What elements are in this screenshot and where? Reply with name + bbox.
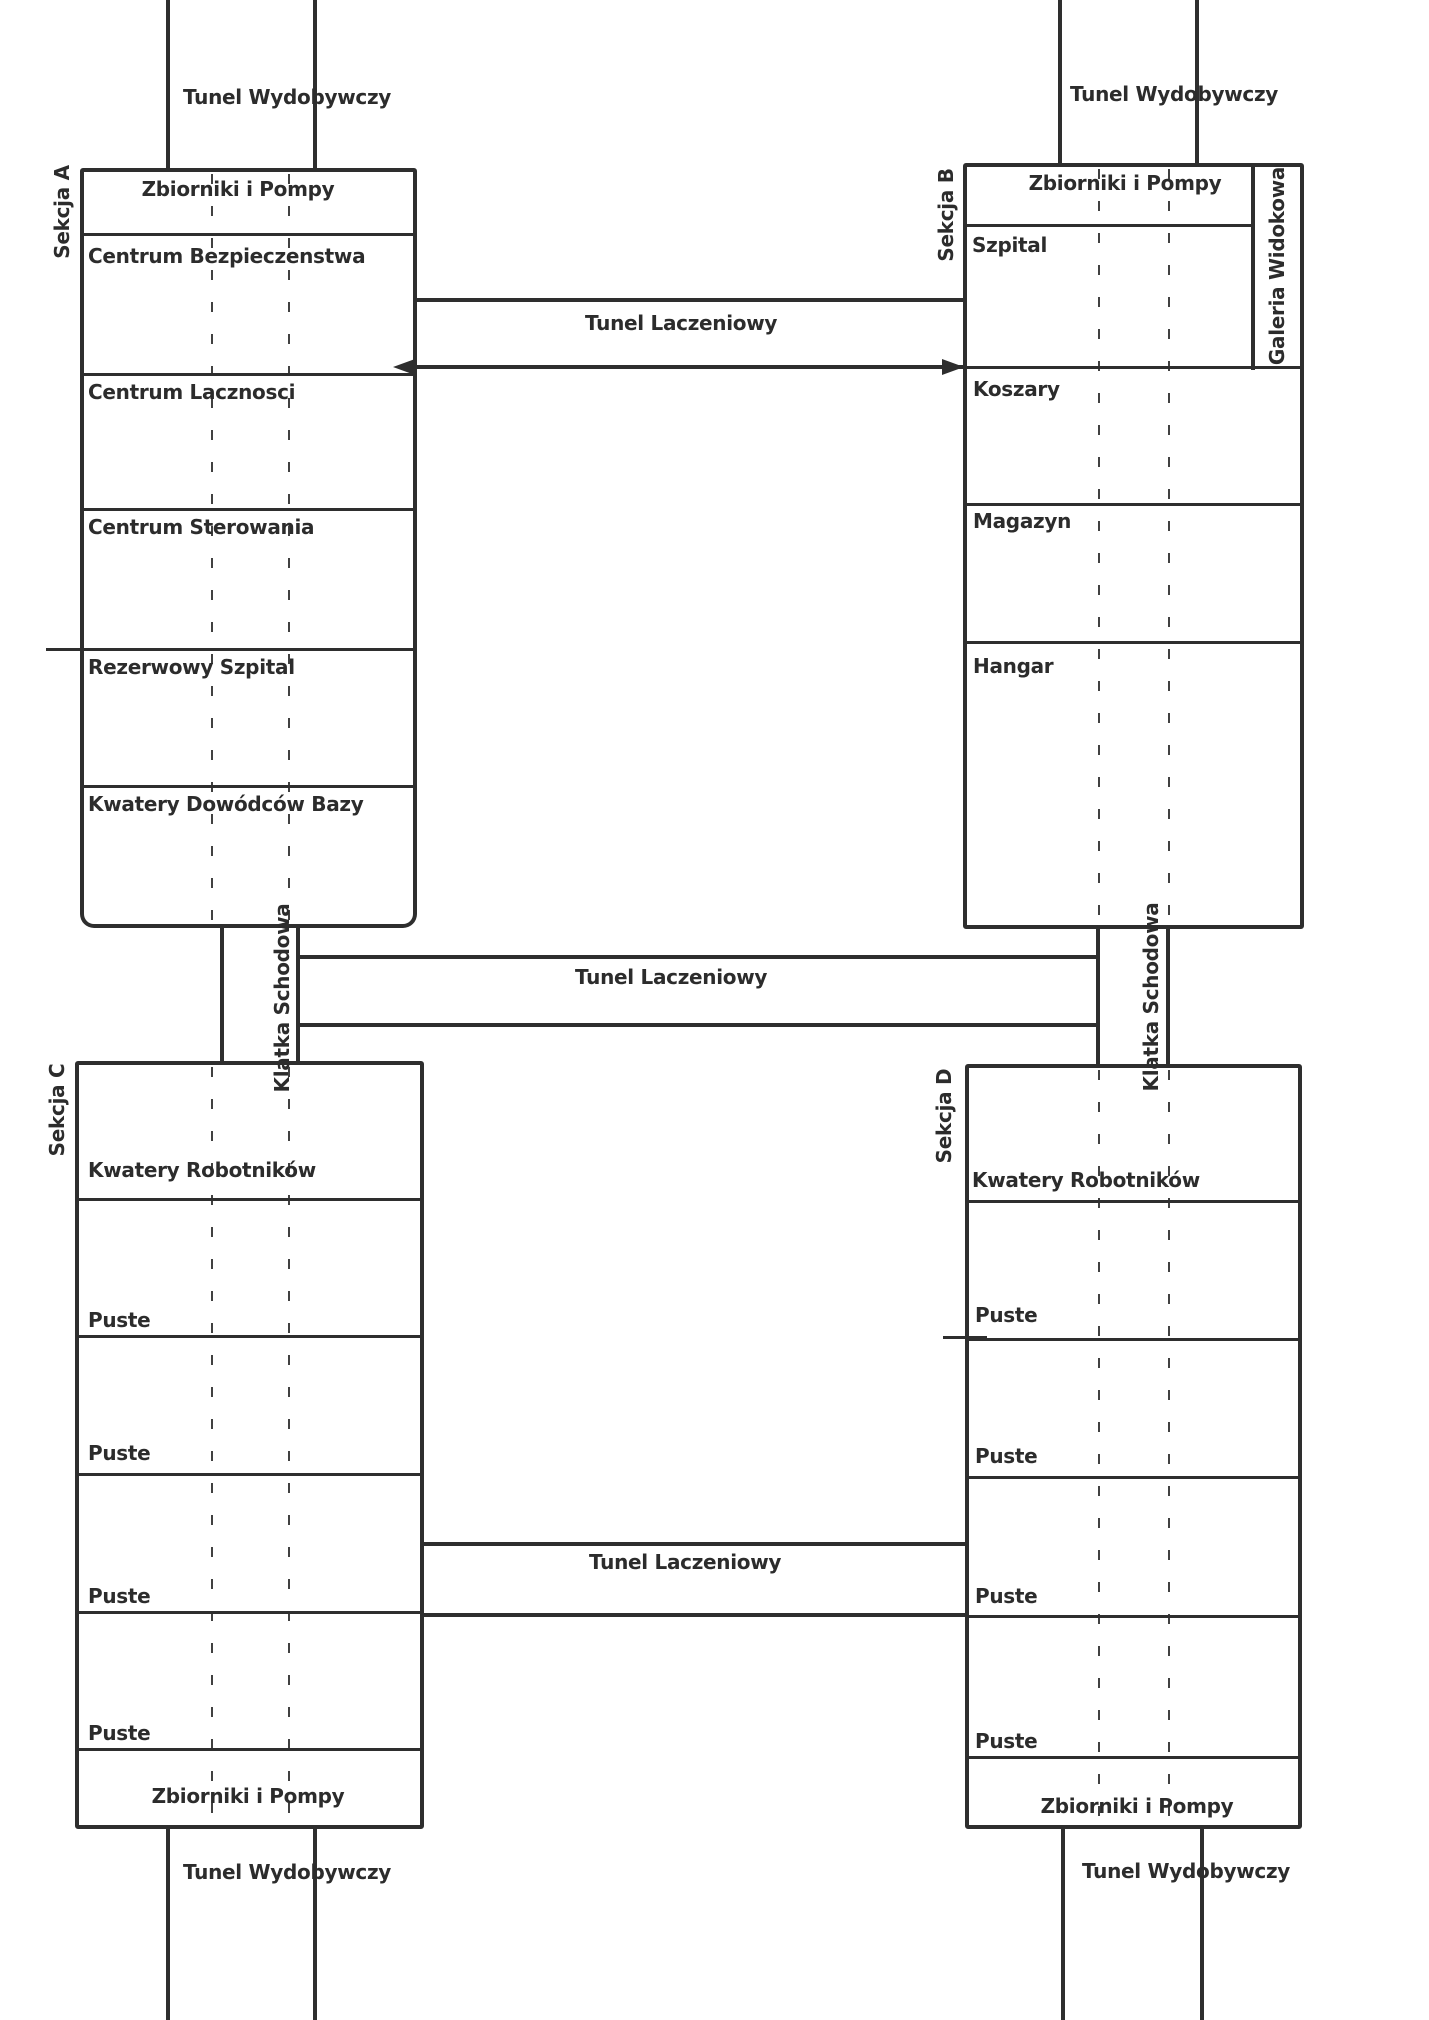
tunel-laczeniowy-cd-top-line bbox=[422, 1542, 967, 1546]
room-label-c-zbiorniki: Zbiorniki i Pompy bbox=[152, 1785, 345, 1807]
sekcja-d-left-tick bbox=[943, 1336, 987, 1339]
sekcja-d-divider-5 bbox=[969, 1756, 1298, 1759]
klatka-schodowa-right-line-2 bbox=[1166, 925, 1170, 1068]
room-label-b-zbiorniki: Zbiorniki i Pompy bbox=[1029, 172, 1222, 194]
room-label-a-centrum-lacznosci: Centrum Lacznosci bbox=[88, 381, 295, 403]
sekcja-c-divider-4 bbox=[79, 1611, 420, 1614]
room-label-d-kwatery-robotnikow: Kwatery Robotników bbox=[972, 1169, 1200, 1191]
mining-tunnel-bottom-right-line-2 bbox=[1200, 1827, 1204, 2020]
sekcja-a-left-tick bbox=[46, 648, 90, 651]
tunel-laczeniowy-mid-top-line bbox=[296, 955, 1100, 959]
room-label-a-centrum-sterowania: Centrum Sterowania bbox=[88, 516, 314, 538]
mine-base-diagram: Tunel Wydobywczy Tunel Wydobywczy Tunel … bbox=[0, 0, 1429, 2020]
sekcja-b-tunnel-dash-2 bbox=[1168, 169, 1170, 923]
sekcja-a-divider-5 bbox=[84, 785, 413, 788]
room-label-a-kwatery-dowodcow: Kwatery Dowódców Bazy bbox=[88, 793, 364, 815]
tunel-laczeniowy-ab-arrow-right bbox=[942, 359, 964, 375]
sekcja-d-divider-1 bbox=[969, 1200, 1298, 1203]
mining-tunnel-bottom-left-line-2 bbox=[313, 1827, 317, 2020]
room-label-d-puste-4: Puste bbox=[975, 1730, 1037, 1752]
sekcja-d-divider-2 bbox=[969, 1338, 1298, 1341]
mining-tunnel-top-right-line-1 bbox=[1058, 0, 1062, 165]
room-label-a-centrum-bezpieczenstwa: Centrum Bezpieczenstwa bbox=[88, 245, 365, 267]
mining-tunnel-bottom-right-label: Tunel Wydobywczy bbox=[1082, 1860, 1290, 1882]
room-label-d-puste-2: Puste bbox=[975, 1445, 1037, 1467]
room-label-a-rezerwowy-szpital: Rezerwowy Szpital bbox=[88, 656, 295, 678]
sekcja-b-tunnel-dash-1 bbox=[1098, 169, 1100, 923]
sekcja-a-label: Sekcja A bbox=[51, 165, 73, 259]
mining-tunnel-top-left-line-1 bbox=[166, 0, 170, 170]
room-label-c-puste-4: Puste bbox=[88, 1722, 150, 1744]
mining-tunnel-top-left-label: Tunel Wydobywczy bbox=[183, 86, 391, 108]
sekcja-b-divider-1 bbox=[967, 224, 1253, 227]
room-label-c-puste-3: Puste bbox=[88, 1585, 150, 1607]
tunel-laczeniowy-mid-bottom-line bbox=[296, 1023, 1100, 1027]
room-label-c-puste-1: Puste bbox=[88, 1309, 150, 1331]
room-label-d-zbiorniki: Zbiorniki i Pompy bbox=[1041, 1795, 1234, 1817]
room-label-b-hangar: Hangar bbox=[973, 655, 1053, 677]
sekcja-d-divider-3 bbox=[969, 1476, 1298, 1479]
room-label-b-szpital: Szpital bbox=[972, 234, 1047, 256]
sekcja-c-divider-3 bbox=[79, 1473, 420, 1476]
room-label-c-kwatery-robotnikow: Kwatery Robotników bbox=[88, 1159, 316, 1181]
sekcja-a-divider-4 bbox=[84, 648, 413, 651]
room-label-d-puste-3: Puste bbox=[975, 1585, 1037, 1607]
sekcja-b-label: Sekcja B bbox=[935, 168, 957, 261]
room-label-a-zbiorniki: Zbiorniki i Pompy bbox=[142, 178, 335, 200]
tunel-laczeniowy-mid-label: Tunel Laczeniowy bbox=[575, 966, 767, 988]
room-label-d-puste-1: Puste bbox=[975, 1304, 1037, 1326]
klatka-schodowa-left-line-1 bbox=[220, 924, 224, 1065]
klatka-schodowa-left-line-2 bbox=[296, 924, 300, 1065]
sekcja-c-divider-5 bbox=[79, 1748, 420, 1751]
mining-tunnel-bottom-left-label: Tunel Wydobywczy bbox=[183, 1861, 391, 1883]
sekcja-a-divider-1 bbox=[84, 233, 413, 236]
galeria-widokowa-label: Galeria Widokowa bbox=[1266, 167, 1288, 365]
sekcja-c-divider-2 bbox=[79, 1335, 420, 1338]
room-label-c-puste-2: Puste bbox=[88, 1442, 150, 1464]
sekcja-b-divider-3 bbox=[967, 503, 1300, 506]
sekcja-b-divider-2 bbox=[967, 366, 1300, 369]
sekcja-a-divider-3 bbox=[84, 508, 413, 511]
mining-tunnel-bottom-right-line-1 bbox=[1061, 1827, 1065, 2020]
tunel-laczeniowy-ab-arrow-left bbox=[393, 359, 415, 375]
tunel-laczeniowy-cd-bottom-line bbox=[422, 1613, 967, 1617]
tunel-laczeniowy-ab-label: Tunel Laczeniowy bbox=[585, 312, 777, 334]
sekcja-d-label: Sekcja D bbox=[933, 1069, 955, 1164]
sekcja-c-label: Sekcja C bbox=[46, 1064, 68, 1157]
tunel-laczeniowy-ab-top-line bbox=[415, 298, 965, 302]
galeria-widokowa-inner-line bbox=[1251, 166, 1255, 370]
room-label-b-magazyn: Magazyn bbox=[973, 510, 1071, 532]
klatka-schodowa-right-line-1 bbox=[1096, 925, 1100, 1068]
sekcja-b-divider-4 bbox=[967, 641, 1300, 644]
sekcja-a-divider-2 bbox=[84, 373, 413, 376]
sekcja-d-divider-4 bbox=[969, 1615, 1298, 1618]
tunel-laczeniowy-ab-bottom-line bbox=[415, 365, 965, 369]
mining-tunnel-bottom-left-line-1 bbox=[166, 1827, 170, 2020]
sekcja-c-divider-1 bbox=[79, 1198, 420, 1201]
room-label-b-koszary: Koszary bbox=[973, 378, 1060, 400]
mining-tunnel-top-right-label: Tunel Wydobywczy bbox=[1070, 83, 1278, 105]
tunel-laczeniowy-cd-label: Tunel Laczeniowy bbox=[589, 1551, 781, 1573]
